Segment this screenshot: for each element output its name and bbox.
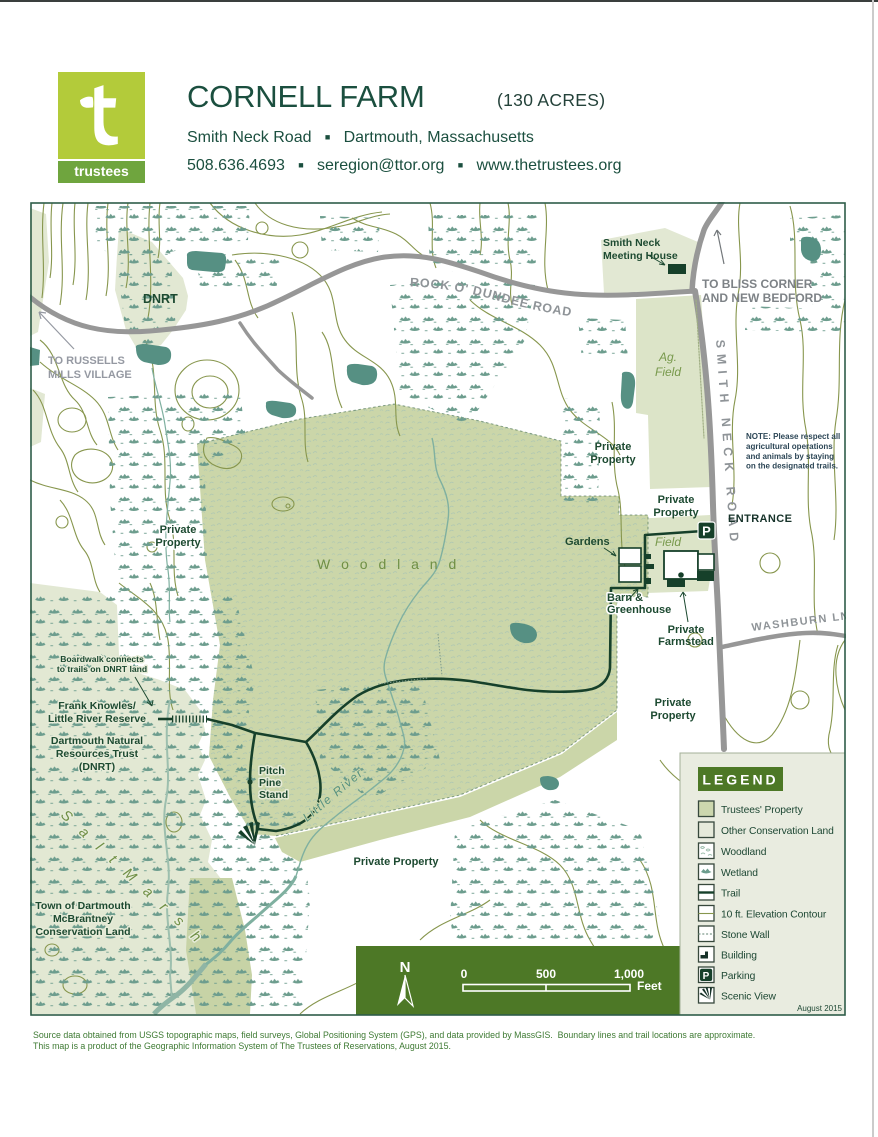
svg-text:Field: Field	[655, 365, 681, 379]
svg-text:Farmstead: Farmstead	[658, 636, 714, 648]
svg-text:Feet: Feet	[637, 979, 662, 993]
svg-text:N: N	[400, 959, 411, 976]
svg-text:Private: Private	[595, 441, 632, 453]
svg-text:Private: Private	[160, 524, 197, 536]
svg-text:Other Conservation Land: Other Conservation Land	[721, 826, 834, 837]
svg-text:Property: Property	[590, 454, 636, 466]
svg-text:Woodland: Woodland	[721, 847, 767, 858]
svg-text:Boardwalk connects: Boardwalk connects	[60, 654, 144, 664]
svg-text:Little River Reserve: Little River Reserve	[48, 713, 146, 725]
svg-text:Parking: Parking	[721, 971, 756, 982]
svg-text:MILLS VILLAGE: MILLS VILLAGE	[48, 369, 132, 381]
svg-text:Private: Private	[658, 494, 695, 506]
svg-text:Private: Private	[668, 624, 705, 636]
svg-text:Field: Field	[655, 535, 681, 549]
svg-text:10 ft. Elevation Contour: 10 ft. Elevation Contour	[721, 910, 827, 921]
svg-text:Property: Property	[650, 710, 696, 722]
svg-text:500: 500	[536, 967, 556, 981]
svg-text:Smith Neck: Smith Neck	[603, 237, 660, 249]
svg-text:0: 0	[461, 967, 468, 981]
svg-text:Building: Building	[721, 951, 757, 962]
svg-text:TO RUSSELLS: TO RUSSELLS	[48, 355, 125, 367]
svg-text:Dartmouth Natural: Dartmouth Natural	[51, 735, 143, 747]
svg-text:Barn &: Barn &	[607, 592, 643, 604]
svg-text:Trustees' Property: Trustees' Property	[721, 805, 804, 816]
svg-text:Stone Wall: Stone Wall	[721, 930, 769, 941]
svg-text:(DNRT): (DNRT)	[79, 761, 115, 773]
svg-text:Frank Knowles/: Frank Knowles/	[58, 700, 136, 712]
svg-text:ENTRANCE: ENTRANCE	[728, 513, 792, 525]
svg-text:August 2015: August 2015	[797, 1004, 842, 1013]
svg-text:Private: Private	[655, 697, 692, 709]
svg-text:on the designated trails.: on the designated trails.	[746, 462, 838, 471]
svg-text:Pine: Pine	[259, 777, 281, 789]
svg-text:Property: Property	[653, 507, 699, 519]
svg-text:Town of Dartmouth: Town of Dartmouth	[35, 900, 130, 912]
svg-text:AND NEW BEDFORD: AND NEW BEDFORD	[702, 291, 822, 305]
svg-text:Gardens: Gardens	[565, 536, 610, 548]
svg-text:LEGEND: LEGEND	[702, 772, 778, 788]
svg-text:Greenhouse: Greenhouse	[607, 604, 671, 616]
svg-text:to trails on DNRT land: to trails on DNRT land	[57, 664, 147, 674]
svg-text:DNRT: DNRT	[143, 292, 178, 306]
svg-text:Property: Property	[155, 537, 201, 549]
svg-text:P: P	[703, 971, 710, 982]
svg-text:Meeting House: Meeting House	[603, 250, 678, 262]
svg-text:Private Property: Private Property	[354, 856, 440, 868]
svg-text:McBrantney: McBrantney	[53, 913, 113, 925]
svg-text:agricultural operations: agricultural operations	[746, 442, 833, 451]
svg-text:Conservation Land: Conservation Land	[35, 926, 130, 938]
svg-text:and animals by staying: and animals by staying	[746, 452, 834, 461]
svg-text:Trail: Trail	[721, 889, 740, 900]
svg-text:P: P	[702, 524, 711, 539]
svg-text:Stand: Stand	[259, 789, 288, 801]
svg-text:Resources Trust: Resources Trust	[56, 748, 139, 760]
svg-text:Scenic View: Scenic View	[721, 992, 776, 1003]
svg-text:Ag.: Ag.	[658, 350, 677, 364]
svg-text:NOTE: Please respect all: NOTE: Please respect all	[746, 432, 840, 441]
svg-text:W o o d l a n d: W o o d l a n d	[317, 556, 460, 572]
svg-text:Pitch: Pitch	[259, 765, 285, 777]
svg-text:Wetland: Wetland	[721, 868, 758, 879]
svg-text:TO BLISS CORNER: TO BLISS CORNER	[702, 277, 813, 291]
